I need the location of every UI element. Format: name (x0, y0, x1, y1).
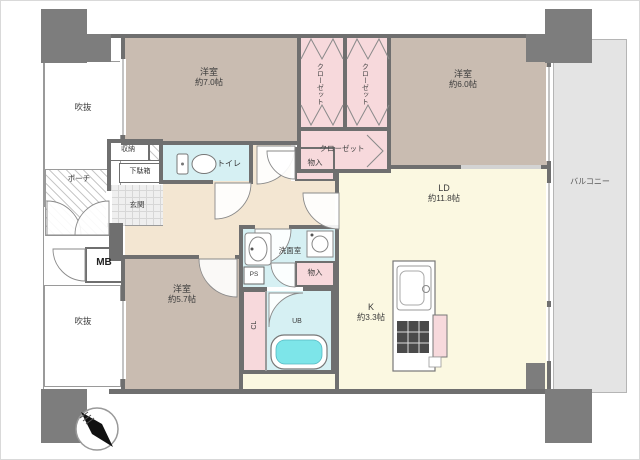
room-name: K (368, 302, 374, 312)
label-storage-shelf: 収納 (107, 146, 149, 154)
label-bedroom-top-left: 洋室 約7.0帖 (159, 67, 259, 88)
label-void-lower: 吹抜 (59, 316, 107, 326)
window-bedroom1-void (120, 59, 126, 135)
room-name: 洋室 (454, 69, 472, 79)
room-name: 洋室 (173, 284, 191, 294)
window-bedroom2-balcony (546, 67, 552, 161)
label-storage-washroom: 物入 (295, 268, 335, 277)
room-size: 約6.0帖 (413, 80, 513, 90)
compass-icon (76, 408, 118, 450)
floor-plan: 洋室 約7.0帖 洋室 約6.0帖 洋室 約5.7帖 LD 約11.8帖 K 約… (0, 0, 640, 460)
label-storage-hall: 物入 (295, 158, 335, 167)
sliding-door-bedroom2-ld (461, 165, 541, 169)
label-kitchen: K 約3.3帖 (341, 302, 401, 323)
room-name: 洋室 (200, 67, 218, 77)
window-ld-balcony-2 (546, 307, 552, 361)
label-washroom: 洗面室 (267, 246, 313, 255)
door-ld-entry (303, 193, 339, 229)
label-shoe-cabinet: 下駄箱 (119, 168, 161, 176)
label-bedroom-top-right: 洋室 約6.0帖 (413, 69, 513, 90)
label-closet-cl: CL (251, 311, 259, 339)
fridge-space (433, 315, 447, 357)
bathtub-icon (271, 335, 327, 369)
label-entrance: 玄関 (113, 200, 161, 209)
label-toilet: トイレ (207, 159, 251, 169)
kitchen-counter-icon (393, 261, 447, 371)
label-bedroom-bottom: 洋室 約5.7帖 (132, 284, 232, 305)
room-size: 約5.7帖 (132, 295, 232, 305)
door-porch-right (75, 201, 109, 235)
label-void-upper: 吹抜 (59, 102, 107, 112)
label-balcony: バルコニー (553, 177, 627, 187)
label-closet-lower: クローゼット (299, 144, 385, 153)
stove-icon (397, 321, 429, 353)
label-unit-bath: UB (285, 318, 309, 326)
room-size: 約3.3帖 (341, 313, 401, 323)
label-living-dining: LD 約11.8帖 (394, 183, 494, 204)
door-storage-washroom (271, 263, 295, 287)
room-size: 約7.0帖 (159, 78, 259, 88)
label-closet-left: クローゼット (315, 43, 323, 125)
door-meter-box (53, 249, 85, 281)
window-ld-balcony (546, 183, 552, 301)
label-closet-right: クローゼット (360, 43, 368, 125)
label-porch: ポーチ (51, 174, 107, 183)
door-toilet (215, 183, 251, 219)
window-bedroom3-void (120, 301, 126, 379)
room-size: 約11.8帖 (394, 194, 494, 204)
room-name: LD (438, 183, 450, 193)
label-meter-box: MB (85, 257, 123, 269)
label-pipe-space: PS (244, 271, 264, 279)
